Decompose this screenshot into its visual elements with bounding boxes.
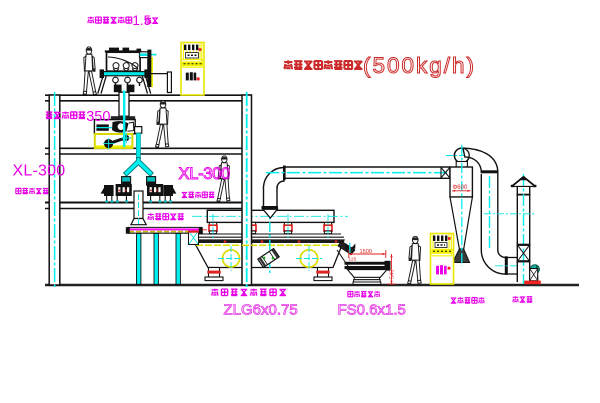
svg-text:XL-300: XL-300 xyxy=(13,163,66,180)
svg-text:350: 350 xyxy=(86,109,110,125)
svg-text:(500kg/h): (500kg/h) xyxy=(363,53,476,78)
svg-text:125: 125 xyxy=(349,257,357,262)
svg-text:ZLG6x0.75: ZLG6x0.75 xyxy=(224,302,298,319)
svg-text:1500: 1500 xyxy=(360,249,372,255)
svg-text:XL-300: XL-300 xyxy=(179,165,231,183)
svg-text:545: 545 xyxy=(390,270,396,279)
svg-text:FS0.6x1.5: FS0.6x1.5 xyxy=(338,302,406,319)
